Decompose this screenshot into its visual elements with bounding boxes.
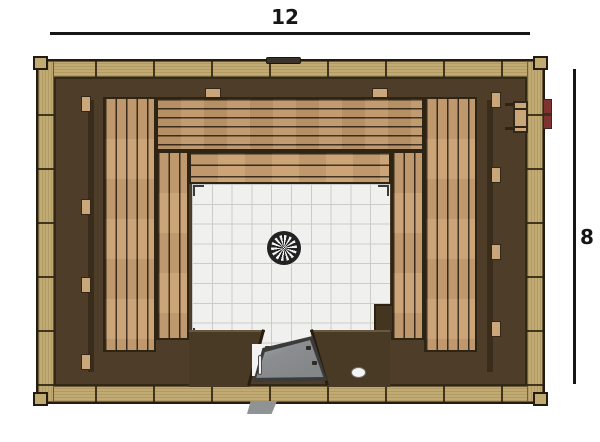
tile-floor	[192, 184, 390, 346]
threshold-step	[247, 401, 277, 414]
floor-drain-icon	[267, 231, 301, 265]
wall-frame-left	[38, 61, 54, 402]
corner-post-top-right	[533, 56, 548, 70]
height-dimension-label: 8	[580, 227, 600, 247]
door-knob	[351, 367, 366, 378]
bench-back-upper	[156, 97, 424, 151]
drain-grate	[271, 235, 297, 261]
glass-door	[250, 336, 328, 382]
vent-slat	[515, 126, 526, 128]
width-dimension-line	[50, 32, 530, 35]
vent-slat	[515, 108, 526, 110]
height-dimension-line	[573, 69, 576, 384]
wall-frame-right	[527, 61, 543, 402]
tile-corner-bracket	[193, 185, 204, 196]
platform-edge-highlight	[310, 330, 390, 332]
bench-left-lower	[156, 151, 189, 340]
wall-frame-bottom	[38, 386, 543, 402]
door-handle	[258, 355, 262, 375]
platform-edge-highlight	[189, 330, 265, 332]
bench-right-lower	[391, 151, 424, 340]
wall-vent-icon	[513, 101, 528, 133]
door-hinge	[306, 346, 311, 350]
bench-left-upper	[103, 97, 156, 352]
wall-cleat	[491, 244, 501, 260]
corner-post-bottom-right	[533, 392, 548, 406]
tile-corner-bracket	[378, 185, 389, 196]
wall-cleat	[491, 167, 501, 183]
backrest-rail-left	[88, 100, 94, 372]
bench-back-lower	[189, 151, 391, 184]
roof-vent-icon	[266, 57, 301, 64]
door-hinge	[312, 361, 317, 365]
bench-side-face-right	[374, 304, 392, 332]
corner-post-top-left	[33, 56, 48, 70]
wall-cleat	[81, 96, 91, 112]
wall-cleat	[81, 199, 91, 215]
sauna-floor-plan-canvas: 12 8	[0, 0, 600, 442]
wall-cleat	[491, 92, 501, 108]
width-dimension-label: 12	[262, 7, 308, 27]
wall-cleat	[81, 277, 91, 293]
corner-post-bottom-left	[33, 392, 48, 406]
wall-cleat	[491, 321, 501, 337]
red-fixture-icon	[543, 99, 552, 129]
bench-right-upper	[424, 97, 477, 352]
wall-cleat	[81, 354, 91, 370]
